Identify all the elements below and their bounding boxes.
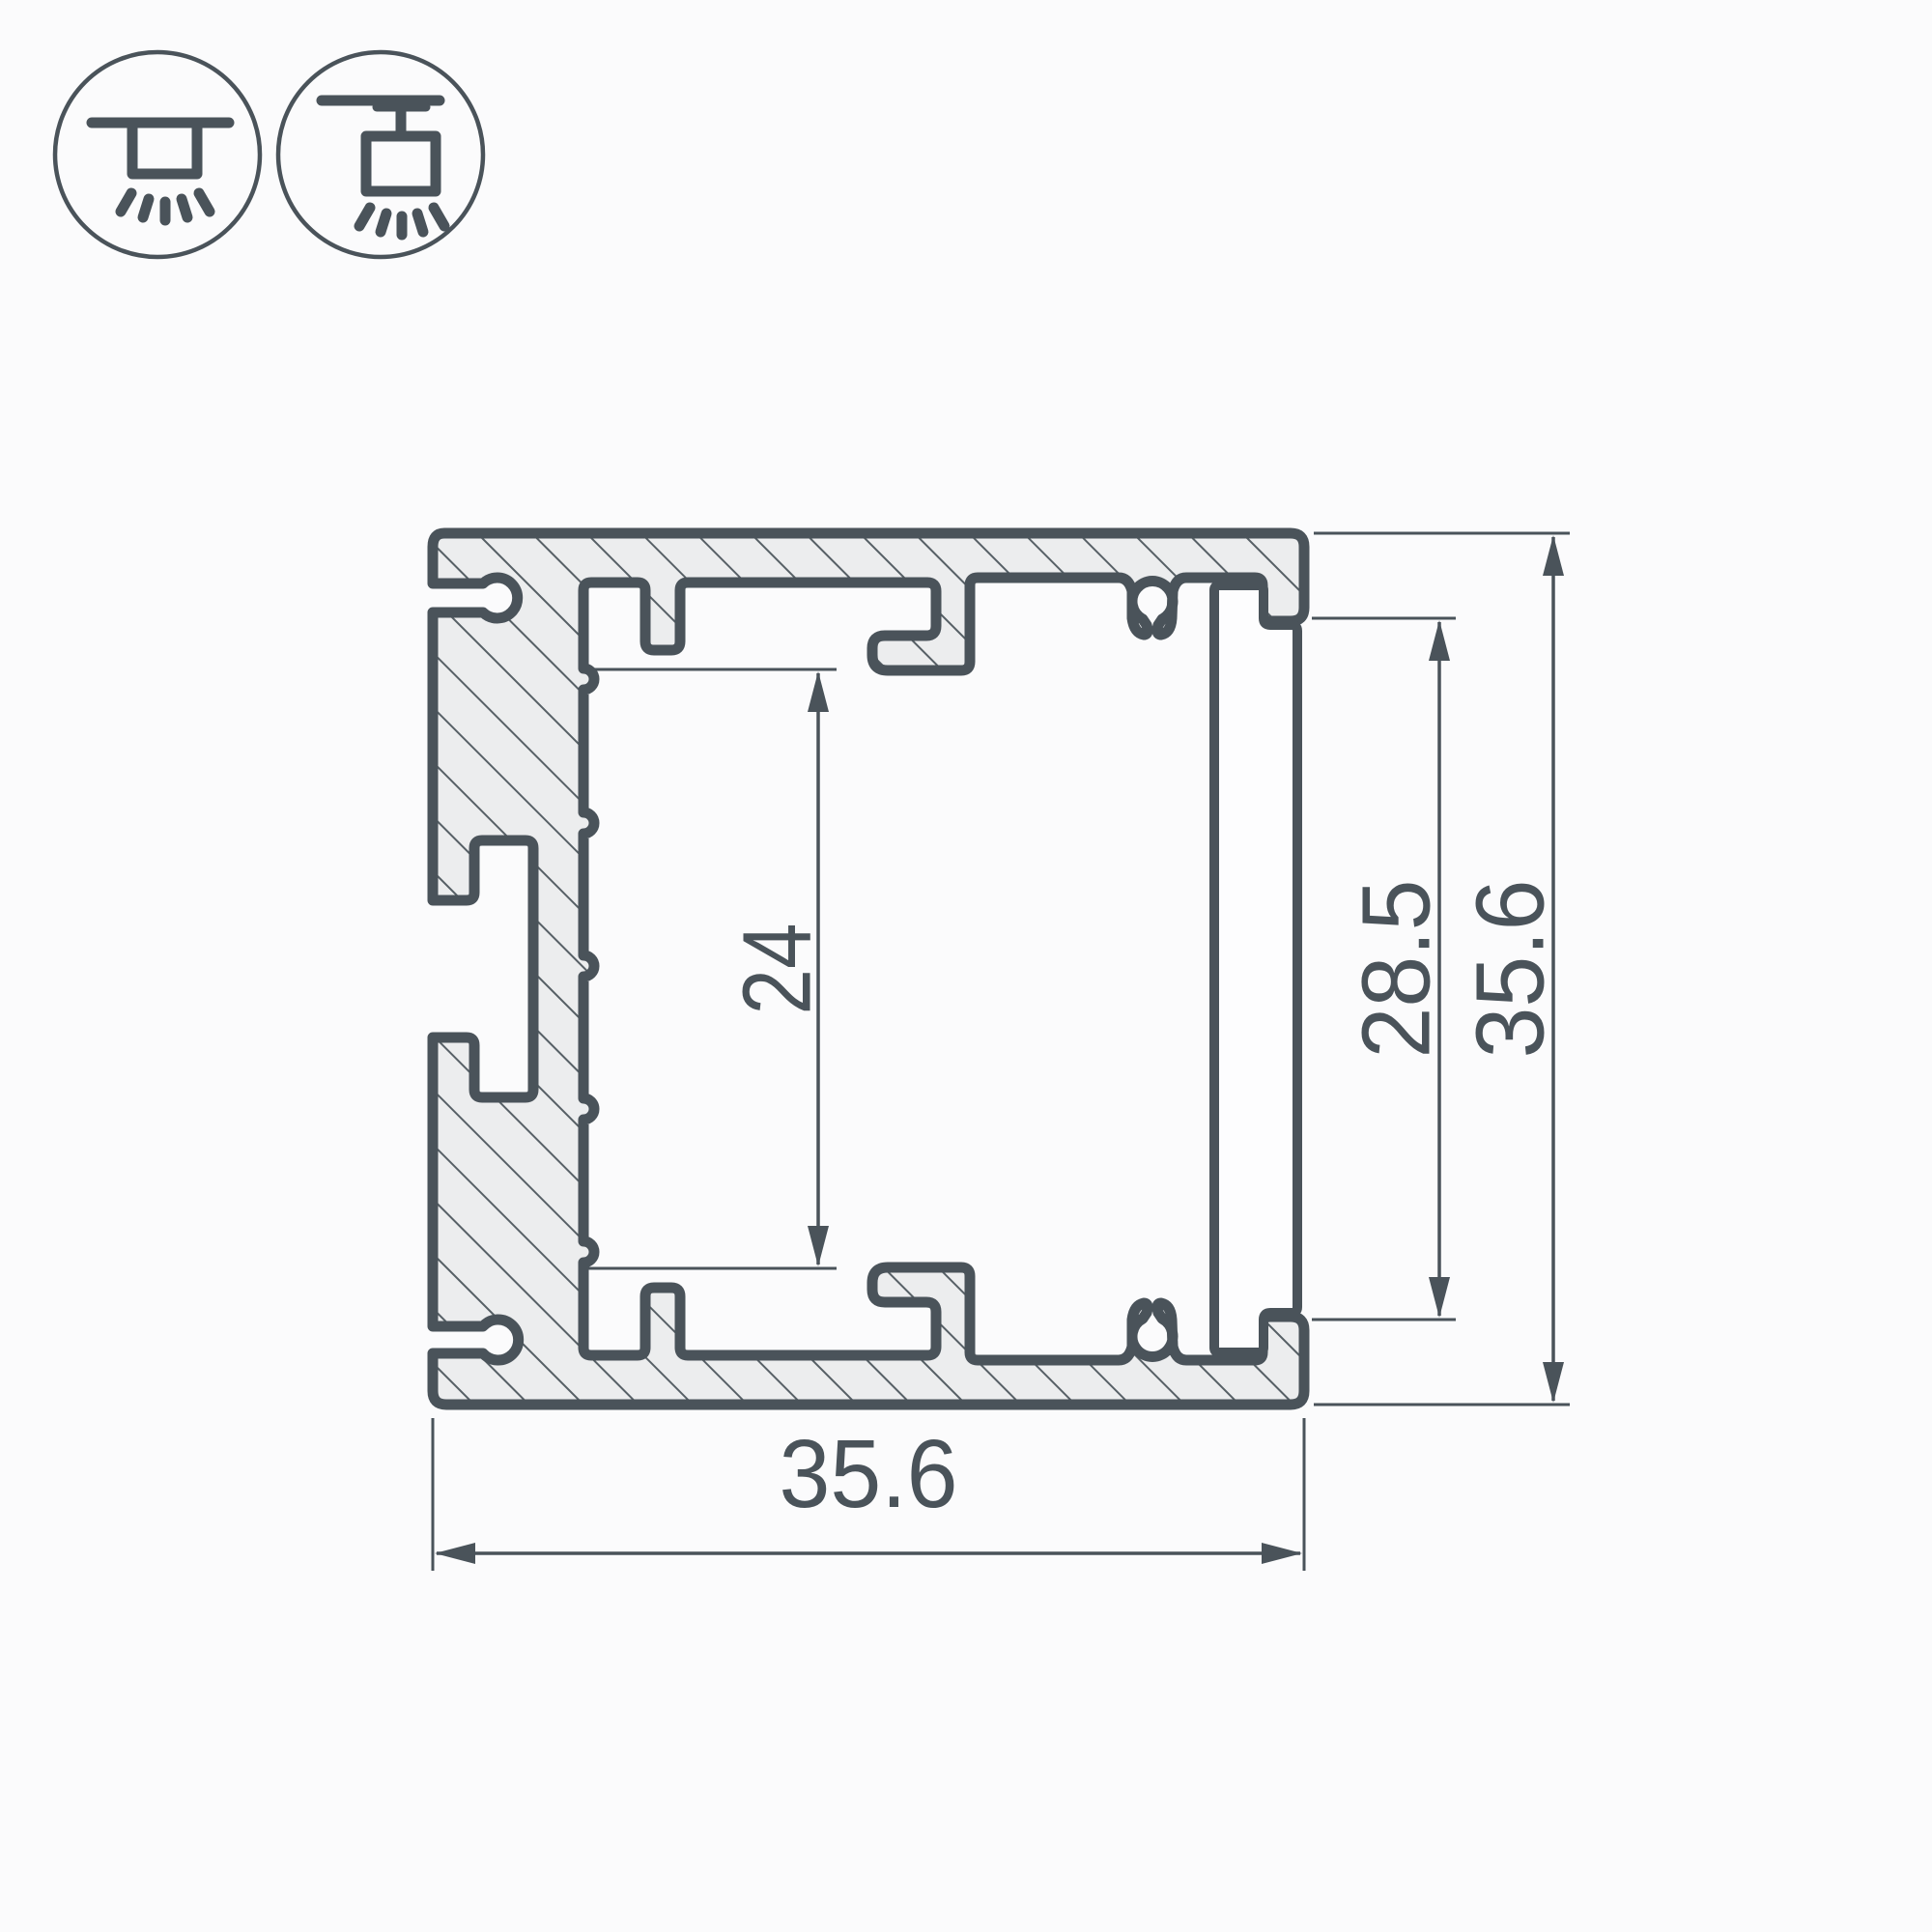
profile-cross-section-diagram: 24 28.5 35.6 35.6 (0, 0, 1932, 1932)
pendant-mount-fixture-icon (366, 136, 436, 191)
dimension-label-24: 24 (723, 923, 831, 1015)
diffuser-plate (1214, 585, 1297, 1352)
technical-drawing-page: 24 28.5 35.6 35.6 (0, 0, 1932, 1932)
dimension-label-28-5: 28.5 (1342, 880, 1450, 1059)
aluminum-profile-body (433, 533, 1304, 1405)
dimension-label-35-6-horizontal: 35.6 (780, 1420, 958, 1528)
surface-mount-circle-icon (55, 52, 260, 257)
dimension-overall-width: 35.6 (433, 1418, 1304, 1571)
surface-mount-light-rays-icon (121, 193, 210, 220)
dimension-opening-height: 28.5 (1312, 618, 1456, 1320)
surface-mount-fixture-icon (132, 123, 197, 174)
pendant-mount-light-rays-icon (359, 208, 444, 235)
icon-surface-mount (55, 52, 260, 257)
dimension-label-35-6-vertical: 35.6 (1456, 880, 1564, 1059)
dimension-inner-height: 24 (587, 669, 837, 1268)
icon-pendant-mount (278, 52, 483, 257)
